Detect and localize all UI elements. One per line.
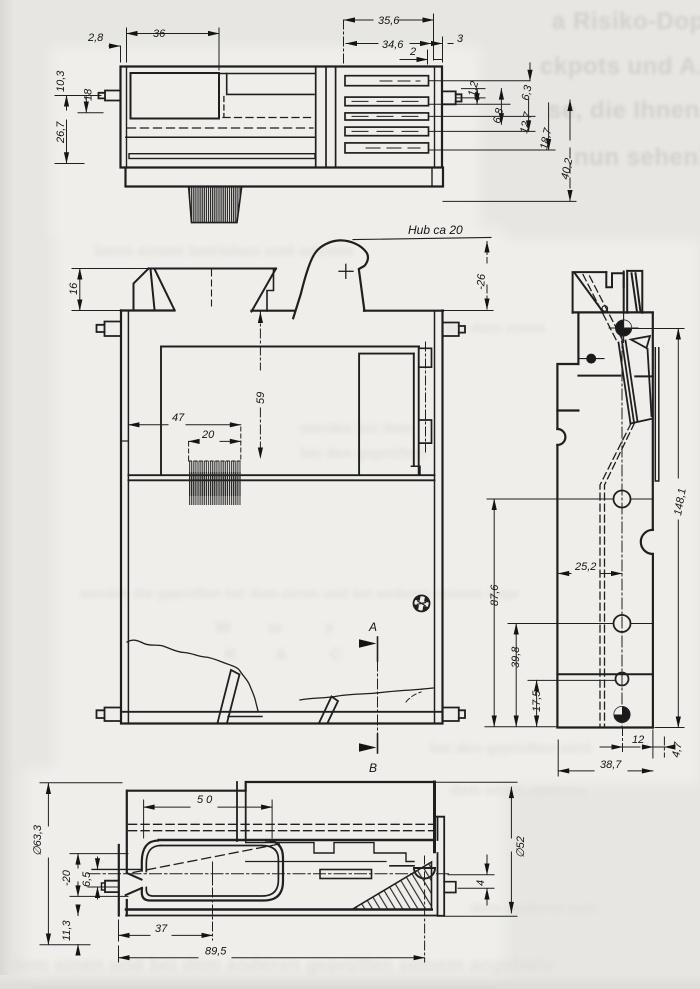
svg-text:-26: -26 (475, 273, 488, 291)
svg-text:89,5: 89,5 (205, 946, 227, 958)
svg-text:26,7: 26,7 (55, 121, 67, 144)
svg-text:10,3: 10,3 (55, 70, 67, 92)
svg-text:12: 12 (632, 734, 644, 746)
svg-text:5 0: 5 0 (197, 794, 213, 806)
svg-text:16: 16 (68, 282, 80, 295)
svg-text:B: B (369, 761, 377, 775)
svg-text:2: 2 (409, 46, 416, 58)
svg-text:Hub ca 20: Hub ca 20 (408, 223, 463, 237)
svg-text:59: 59 (255, 392, 267, 404)
svg-text:4,7: 4,7 (670, 741, 685, 759)
svg-text:6,8: 6,8 (491, 106, 506, 124)
svg-text:20: 20 (201, 429, 215, 441)
svg-text:35,6: 35,6 (378, 15, 400, 27)
svg-text:34,6: 34,6 (382, 39, 404, 51)
svg-text:18: 18 (83, 88, 95, 101)
svg-text:4: 4 (475, 880, 487, 886)
svg-text:148,1: 148,1 (672, 487, 689, 516)
svg-text:∅63,3: ∅63,3 (32, 824, 44, 856)
svg-text:3: 3 (457, 33, 464, 45)
svg-text:2,8: 2,8 (87, 32, 104, 44)
svg-text:18,7: 18,7 (538, 126, 554, 150)
svg-text:38,7: 38,7 (600, 759, 622, 771)
svg-text:6,5: 6,5 (81, 871, 93, 887)
svg-text:37: 37 (155, 923, 168, 935)
svg-text:A: A (368, 620, 377, 634)
svg-text:6,3: 6,3 (520, 83, 535, 101)
svg-text:∅52: ∅52 (515, 836, 527, 858)
svg-text:47: 47 (172, 412, 185, 424)
svg-text:87,6: 87,6 (489, 584, 501, 606)
svg-text:40,2: 40,2 (559, 157, 575, 180)
svg-text:-20: -20 (61, 869, 73, 886)
svg-text:25,2: 25,2 (574, 561, 596, 573)
svg-text:11,3: 11,3 (61, 920, 73, 941)
